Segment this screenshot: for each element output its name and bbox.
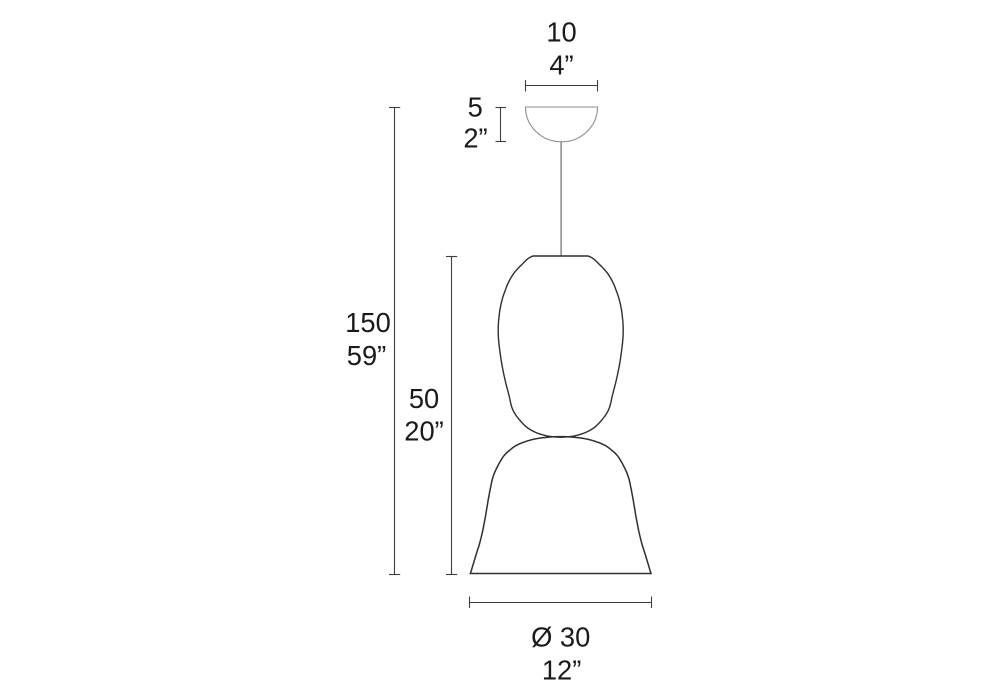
svg-text:4”: 4”: [549, 50, 573, 81]
svg-text:5: 5: [468, 92, 483, 123]
svg-text:Ø 30: Ø 30: [531, 622, 590, 653]
svg-text:150: 150: [345, 307, 391, 338]
svg-text:20”: 20”: [404, 416, 443, 447]
svg-text:10: 10: [546, 17, 576, 48]
svg-text:50: 50: [409, 383, 439, 414]
svg-text:59”: 59”: [347, 340, 386, 371]
svg-text:2”: 2”: [463, 123, 487, 154]
svg-text:12”: 12”: [542, 655, 581, 686]
